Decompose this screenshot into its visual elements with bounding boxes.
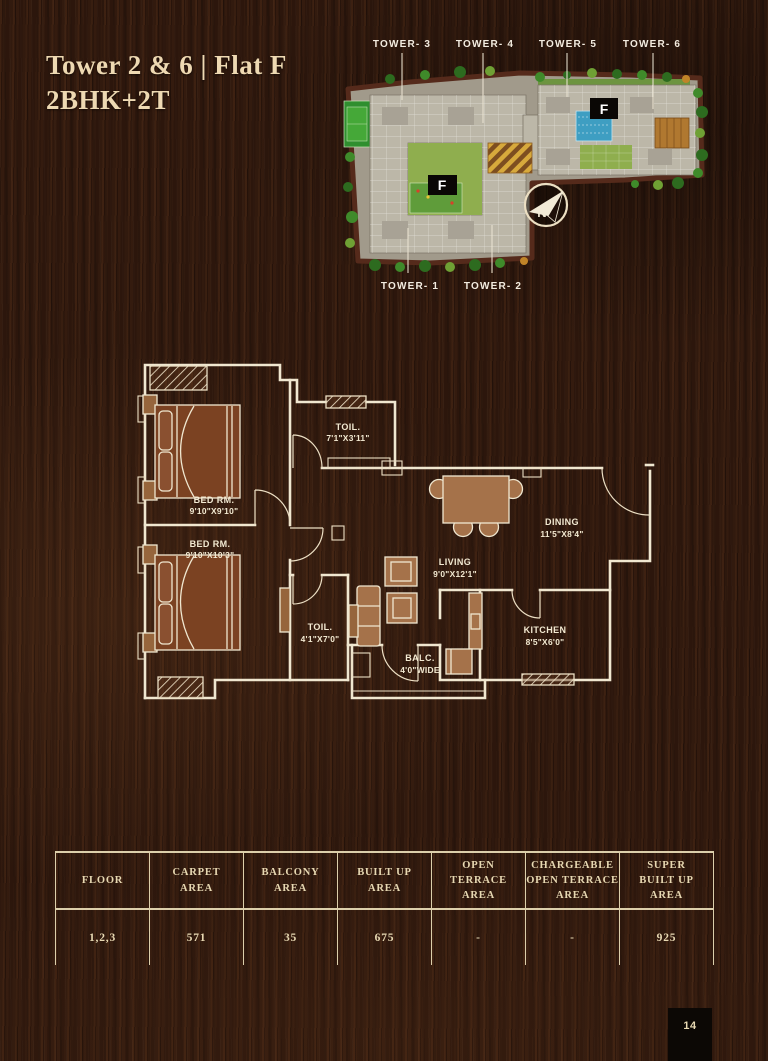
room-labels: BED RM. 9'10"X9'10" TOIL. 7'1"X3'11" BED… bbox=[186, 422, 584, 675]
areas-table: FLOOR CARPET AREA BALCONY AREA BUILT UP … bbox=[55, 851, 714, 965]
table-header-open-terrace-area: OPEN TERRACE AREA bbox=[431, 853, 525, 910]
table-value-balcony-area: 35 bbox=[243, 910, 337, 965]
table-header-built-up-area: BUILT UP AREA bbox=[337, 853, 431, 910]
room-label-kitchen: KITCHEN bbox=[524, 625, 567, 635]
room-label-living: LIVING bbox=[439, 557, 471, 567]
table-header-floor: FLOOR bbox=[55, 853, 149, 910]
page-title-line2: 2BHK+2T bbox=[46, 83, 376, 118]
room-size-toilet-2: 4'1"X7'0" bbox=[301, 634, 340, 644]
cabinet-icon bbox=[280, 588, 290, 632]
room-label-balcony: BALC. bbox=[405, 653, 435, 663]
table-header-chargeable-terrace: CHARGEABLE OPEN TERRACE AREA bbox=[525, 853, 619, 910]
tower-1-label: TOWER- 1 bbox=[381, 281, 439, 292]
page-title-line1: Tower 2 & 6 | Flat F bbox=[46, 48, 376, 83]
kitchen-counter-icon bbox=[469, 593, 482, 649]
page-number: 14 bbox=[683, 1020, 696, 1032]
flat-f-marker-tower2: F bbox=[428, 175, 457, 195]
svg-text:F: F bbox=[438, 177, 447, 193]
room-size-living: 9'0"X12'1" bbox=[433, 569, 477, 579]
room-size-balcony: 4'0"WIDE bbox=[400, 665, 440, 675]
tower-5-label: TOWER- 5 bbox=[539, 39, 597, 50]
table-value-carpet-area: 571 bbox=[149, 910, 243, 965]
table-header-balcony-area: BALCONY AREA bbox=[243, 853, 337, 910]
tower-3-label: TOWER- 3 bbox=[373, 39, 431, 50]
table-value-floor: 1,2,3 bbox=[55, 910, 149, 965]
room-label-toilet-2: TOIL. bbox=[308, 622, 333, 632]
table-value-chargeable-terrace: - bbox=[525, 910, 619, 965]
room-label-dining: DINING bbox=[545, 517, 579, 527]
page-title: Tower 2 & 6 | Flat F 2BHK+2T bbox=[46, 48, 376, 118]
page-number-badge: 14 bbox=[668, 1008, 712, 1061]
sofa-icon bbox=[349, 557, 417, 646]
room-size-dining: 11'5"X8'4" bbox=[540, 529, 583, 539]
room-size-kitchen: 8'5"X6'0" bbox=[526, 637, 565, 647]
room-size-toilet-1: 7'1"X3'11" bbox=[326, 433, 369, 443]
svg-text:N: N bbox=[537, 205, 546, 220]
brochure-page: Tower 2 & 6 | Flat F 2BHK+2T bbox=[0, 0, 768, 1061]
room-label-toilet-1: TOIL. bbox=[336, 422, 361, 432]
flat-f-marker-tower6: F bbox=[590, 98, 618, 119]
table-value-open-terrace-area: - bbox=[431, 910, 525, 965]
room-label-bedroom-2: BED RM. bbox=[190, 539, 231, 549]
wardrobe-icon bbox=[158, 677, 203, 698]
tower-2-label: TOWER- 2 bbox=[464, 281, 522, 292]
room-size-bedroom-1: 9'10"X9'10" bbox=[190, 506, 239, 516]
room-label-bedroom-1: BED RM. bbox=[194, 495, 235, 505]
dining-table-icon bbox=[430, 476, 523, 537]
table-header-carpet-area: CARPET AREA bbox=[149, 853, 243, 910]
table-value-built-up-area: 675 bbox=[337, 910, 431, 965]
tower-4-label: TOWER- 4 bbox=[456, 39, 514, 50]
room-size-bedroom-2: 9'10"X10'3" bbox=[186, 550, 235, 560]
table-header-super-built-up-area: SUPER BUILT UP AREA bbox=[619, 853, 713, 910]
north-compass-icon: N bbox=[525, 184, 567, 226]
table-value-super-built-up-area: 925 bbox=[619, 910, 713, 965]
bed-icon bbox=[143, 545, 240, 652]
site-plan: F F N TOWER- 3 TOWER- 4 TOWER- 5 TOWER- … bbox=[330, 15, 760, 305]
washing-machine-icon bbox=[446, 649, 472, 674]
window-icon bbox=[326, 396, 366, 408]
tower-6-label: TOWER- 6 bbox=[623, 39, 681, 50]
bed-icon bbox=[143, 395, 240, 500]
window-icon bbox=[522, 674, 574, 685]
wardrobe-icon bbox=[150, 366, 207, 390]
svg-text:F: F bbox=[600, 101, 609, 117]
floor-plan: BED RM. 9'10"X9'10" TOIL. 7'1"X3'11" BED… bbox=[130, 350, 685, 715]
